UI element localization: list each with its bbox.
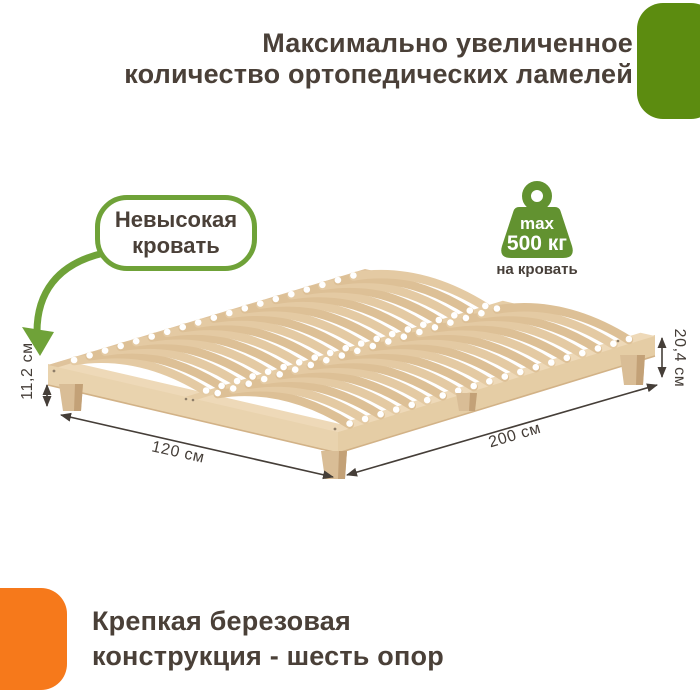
infographic-page: { "header": { "title_line1": "Максимальн…	[0, 0, 700, 700]
footer-title: Крепкая березовая конструкция - шесть оп…	[92, 604, 652, 674]
callout-line2: кровать	[132, 233, 220, 259]
weight-value: 500 кг	[492, 232, 582, 256]
footer-line2: конструкция - шесть опор	[92, 639, 652, 674]
callout-line1: Невысокая	[115, 207, 237, 233]
dimension-bed-height: 11,2 см	[19, 336, 37, 406]
callout-bubble: Невысокая кровать	[95, 195, 257, 271]
bed-leg-front-shade	[338, 451, 347, 479]
weight-max-label: max	[497, 214, 577, 234]
weight-caption: на кровать	[487, 261, 587, 278]
footer-line1: Крепкая березовая	[92, 604, 652, 639]
bed-leg-right-shade	[636, 355, 645, 385]
dimension-frame-height: 20,4 см	[670, 323, 688, 393]
bed-leg-left-shade	[74, 384, 83, 411]
bed-illustration	[0, 0, 700, 700]
